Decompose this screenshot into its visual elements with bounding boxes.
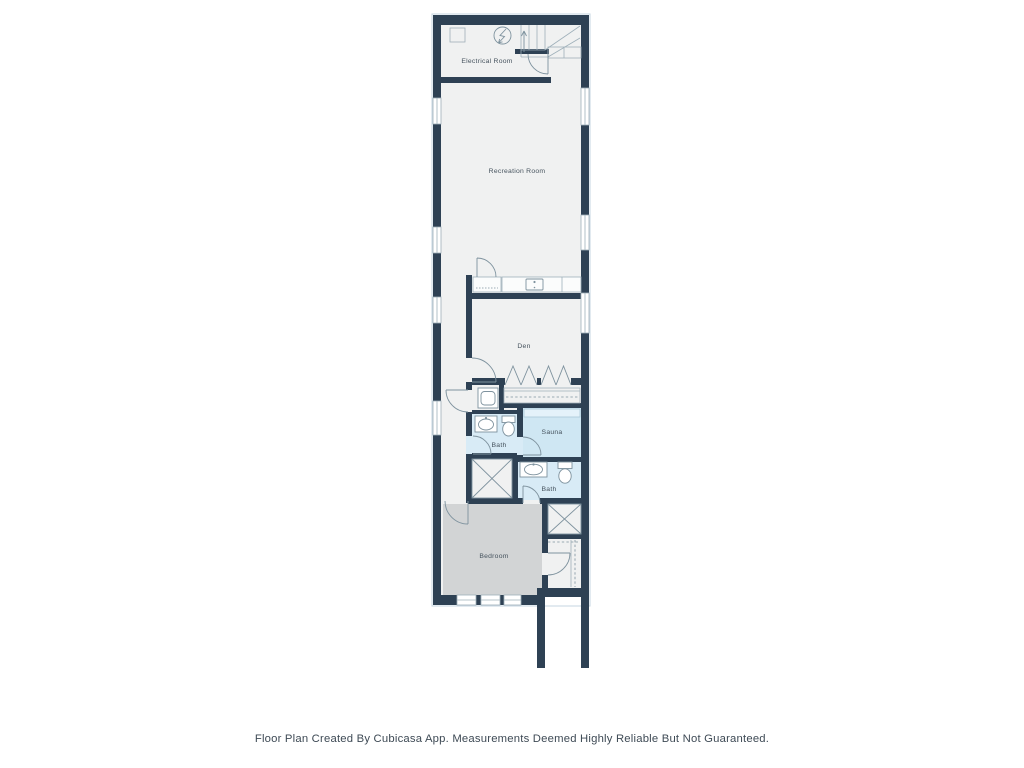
- window-icon: [457, 595, 476, 605]
- floorplan-drawing: Electrical Room Recreation Room Den Bath…: [0, 0, 1024, 768]
- toilet-icon: [558, 462, 572, 483]
- window-icon: [433, 401, 441, 435]
- wall-bedroom-top-b: [540, 498, 581, 504]
- electrical-room-label: Electrical Room: [461, 58, 512, 65]
- sink-icon: [475, 416, 497, 432]
- bath-lower-label: Bath: [542, 486, 557, 493]
- wall-shower-bath: [512, 458, 518, 503]
- wall-sauna-top: [504, 403, 581, 408]
- sink-icon: [520, 462, 547, 477]
- wall-laundry-east: [499, 385, 504, 410]
- wall-electrical-bottom: [441, 77, 551, 83]
- window-icon: [433, 297, 441, 323]
- disclaimer-text: Floor Plan Created By Cubicasa App. Meas…: [0, 733, 1024, 745]
- sauna-label: Sauna: [542, 429, 563, 436]
- washer-icon: [478, 388, 498, 408]
- wall-extension-left: [537, 588, 545, 668]
- floors: [441, 25, 581, 595]
- bath-upper-label: Bath: [492, 442, 507, 449]
- window-icon: [433, 227, 441, 253]
- window-icon: [481, 595, 500, 605]
- wall-extension-top: [545, 588, 581, 597]
- window-icon: [581, 293, 589, 333]
- wall-den-bottom-b: [537, 378, 541, 385]
- floorplan-page: Electrical Room Recreation Room Den Bath…: [0, 0, 1024, 768]
- bedroom-floor: [443, 504, 542, 595]
- wall-den-bottom-c: [571, 378, 581, 385]
- wall-bath-upper-top: [466, 410, 517, 414]
- wall-top: [433, 15, 589, 25]
- dishwasher-icon: [473, 277, 501, 292]
- opening-den-door: [466, 358, 472, 382]
- toilet-icon: [502, 416, 515, 436]
- wall-bedroom-top-a: [468, 498, 523, 504]
- window-icon: [504, 595, 521, 605]
- window-icon: [433, 98, 441, 124]
- window-icon: [581, 215, 589, 250]
- opening-bath-upper-door: [466, 436, 472, 454]
- wall-sauna-bottom: [517, 457, 581, 462]
- bedroom-label: Bedroom: [479, 553, 508, 560]
- recreation-room-label: Recreation Room: [489, 168, 546, 175]
- wall-closet-bottom: [548, 534, 581, 539]
- wall-den-bottom-a: [472, 378, 505, 385]
- opening-sauna-door: [517, 437, 523, 455]
- window-icon: [581, 88, 589, 125]
- wall-bedroom-east: [542, 504, 548, 595]
- den-label: Den: [517, 343, 530, 350]
- opening-laundry-door: [466, 390, 472, 412]
- wall-kitchen-stub: [466, 275, 472, 295]
- kitchen-counter: [473, 277, 581, 292]
- wall-den-top: [466, 293, 581, 299]
- opening-stair-room-door: [542, 553, 548, 575]
- sauna-bench-icon: [524, 409, 580, 417]
